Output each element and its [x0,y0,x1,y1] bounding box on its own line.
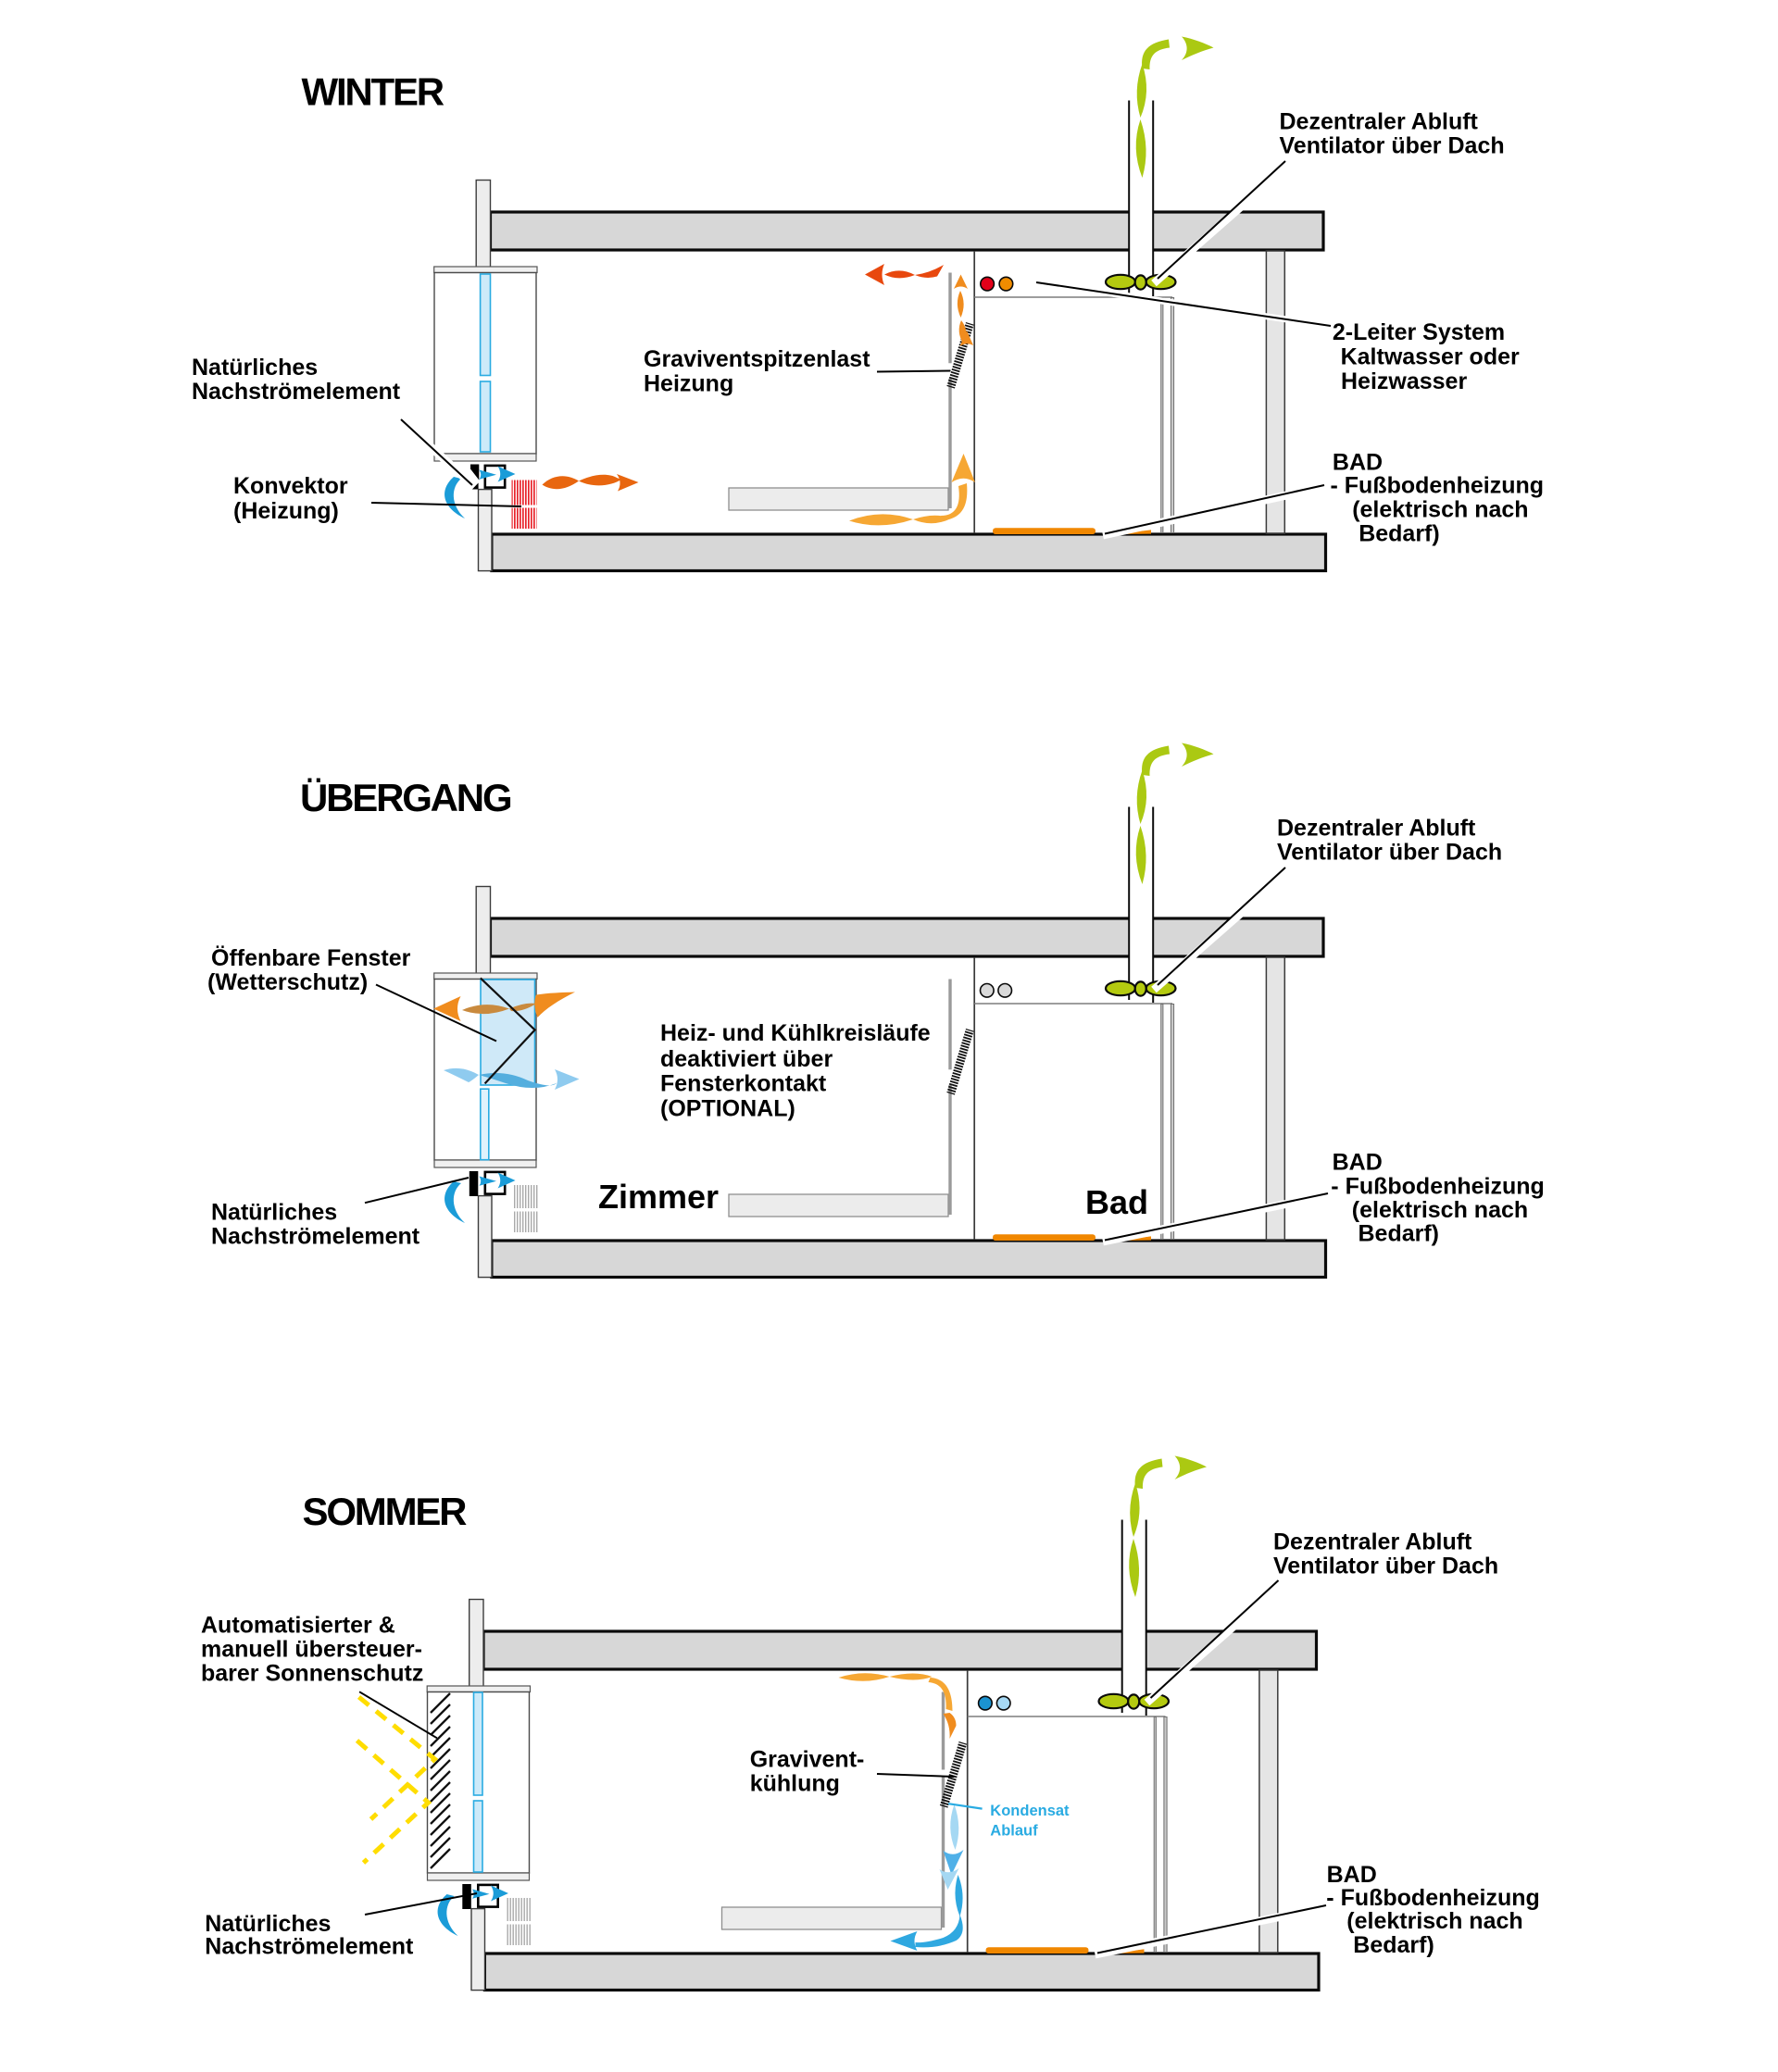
svg-text:Dezentraler Abluft: Dezentraler Abluft [1273,1529,1472,1555]
svg-text:Zimmer: Zimmer [598,1178,719,1216]
svg-text:Bedarf): Bedarf) [1353,1932,1434,1958]
svg-text:barer Sonnenschutz: barer Sonnenschutz [201,1661,423,1687]
svg-text:Gravivent-: Gravivent- [750,1747,865,1773]
svg-text:(elektrisch nach: (elektrisch nach [1346,1908,1522,1934]
svg-text:Kondensat: Kondensat [990,1803,1070,1819]
svg-text:Nachströmelement: Nachströmelement [205,1934,414,1960]
svg-text:Konvektor: Konvektor [233,473,348,499]
svg-text:- Fußbodenheizung: - Fußbodenheizung [1326,1885,1540,1911]
svg-text:ÜBERGANG: ÜBERGANG [300,776,511,819]
svg-text:(elektrisch nach: (elektrisch nach [1352,497,1528,523]
svg-text:2-Leiter System: 2-Leiter System [1333,319,1505,345]
svg-text:Dezentraler Abluft: Dezentraler Abluft [1280,109,1479,135]
svg-text:Natürliches: Natürliches [192,355,318,381]
svg-text:Ventilator über Dach: Ventilator über Dach [1277,840,1502,866]
svg-text:kühlung: kühlung [750,1771,840,1797]
svg-text:Fensterkontakt: Fensterkontakt [660,1071,827,1097]
svg-text:Bad: Bad [1085,1183,1148,1221]
svg-text:manuell übersteuer-: manuell übersteuer- [201,1637,422,1663]
svg-text:- Fußbodenheizung: - Fußbodenheizung [1331,473,1545,499]
svg-text:deaktiviert über: deaktiviert über [660,1046,833,1072]
svg-text:SOMMER: SOMMER [303,1490,468,1533]
svg-text:- Fußbodenheizung: - Fußbodenheizung [1331,1174,1545,1200]
svg-text:Ablauf: Ablauf [990,1823,1038,1840]
svg-text:(OPTIONAL): (OPTIONAL) [660,1096,795,1122]
svg-text:Dezentraler Abluft: Dezentraler Abluft [1277,816,1476,842]
svg-text:Ventilator über Dach: Ventilator über Dach [1273,1554,1498,1579]
svg-text:BAD: BAD [1333,1150,1383,1176]
svg-text:BAD: BAD [1333,449,1383,475]
svg-text:Ventilator über Dach: Ventilator über Dach [1280,133,1505,159]
svg-text:Heizwasser: Heizwasser [1341,368,1467,394]
svg-text:Bedarf): Bedarf) [1359,521,1440,547]
svg-text:Heizung: Heizung [644,371,733,397]
svg-text:(Wetterschutz): (Wetterschutz) [207,969,368,995]
svg-text:Automatisierter &: Automatisierter & [201,1613,395,1639]
svg-text:Graviventspitzenlast: Graviventspitzenlast [644,346,870,372]
svg-text:WINTER: WINTER [302,70,444,114]
svg-text:Heiz- und Kühlkreisläufe: Heiz- und Kühlkreisläufe [660,1020,931,1046]
svg-text:Bedarf): Bedarf) [1359,1221,1440,1247]
svg-text:(Heizung): (Heizung) [233,498,339,524]
svg-text:Natürliches: Natürliches [211,1199,337,1225]
svg-text:(elektrisch nach: (elektrisch nach [1352,1197,1528,1223]
svg-text:Nachströmelement: Nachströmelement [211,1223,420,1249]
svg-text:BAD: BAD [1327,1862,1377,1888]
svg-text:Kaltwasser oder: Kaltwasser oder [1341,343,1520,369]
svg-text:Nachströmelement: Nachströmelement [192,379,401,405]
svg-text:Öffenbare Fenster: Öffenbare Fenster [211,944,411,971]
